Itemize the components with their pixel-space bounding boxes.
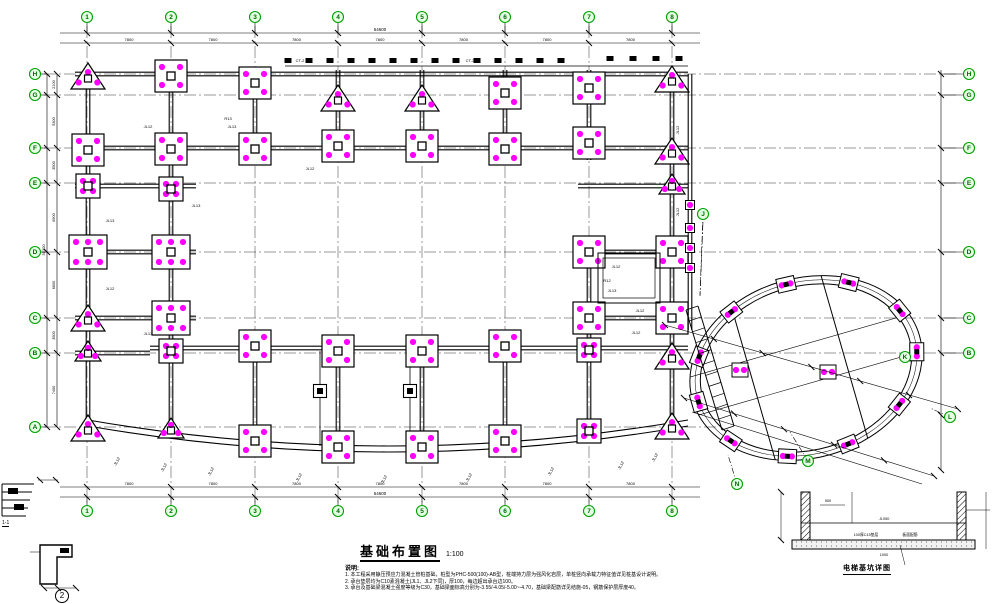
svg-text:4: 4 [336, 14, 340, 21]
svg-text:L: L [948, 414, 952, 421]
pile-cap [655, 413, 689, 439]
svg-text:F: F [33, 145, 37, 152]
pile-cap [655, 343, 689, 369]
svg-text:54600: 54600 [374, 27, 387, 32]
svg-text:JL12: JL12 [675, 207, 680, 216]
note-item-3: 3. 承台及基础梁混凝土强度等级为C30，基础梁面标高分别为-3.55/-4.0… [345, 585, 675, 592]
svg-text:G: G [966, 92, 971, 99]
svg-text:7800: 7800 [376, 37, 386, 42]
svg-text:JL12: JL12 [636, 308, 645, 313]
pile-cap [404, 385, 417, 398]
svg-text:JL13: JL13 [144, 331, 153, 336]
svg-text:7800: 7800 [543, 481, 553, 486]
pile-cap [72, 134, 104, 166]
svg-text:H: H [33, 71, 38, 78]
svg-text:1: 1 [85, 14, 89, 21]
svg-text:JL12: JL12 [632, 330, 641, 335]
svg-text:100厚C15垫层: 100厚C15垫层 [854, 532, 879, 537]
pile-cap [159, 177, 183, 201]
svg-text:B: B [33, 350, 38, 357]
annex-ring [668, 249, 944, 487]
pile-cap [155, 60, 187, 92]
svg-text:8: 8 [670, 14, 674, 21]
svg-text:7800: 7800 [626, 37, 636, 42]
svg-text:3500: 3500 [52, 331, 56, 339]
note-item-1: 1. 本工程采用静压预应力混凝土管桩基础，桩型为PHC-500(100)-AB型… [345, 572, 675, 579]
svg-text:CT-2: CT-2 [466, 58, 475, 63]
svg-text:7: 7 [587, 508, 591, 515]
pile-cap [573, 236, 605, 268]
svg-text:JL12: JL12 [306, 166, 315, 171]
svg-text:JL12: JL12 [294, 472, 303, 483]
svg-text:6900: 6900 [52, 213, 56, 221]
pile-cap [686, 244, 695, 253]
pile-cap [314, 385, 327, 398]
pile-cap [405, 85, 439, 111]
elevator-pit-section: 500-5.050100厚C15垫层板面配筋1000 [778, 489, 990, 565]
pile-cap [152, 235, 190, 269]
svg-text:N: N [735, 481, 740, 488]
drawing-scale: 1:100 [446, 551, 464, 558]
svg-text:R13: R13 [224, 116, 232, 121]
svg-text:JL12: JL12 [650, 452, 659, 463]
svg-text:K: K [903, 354, 908, 361]
svg-text:1: 1 [85, 508, 89, 515]
svg-text:2: 2 [169, 508, 173, 515]
pile-cap [159, 339, 183, 363]
svg-text:35300: 35300 [41, 244, 46, 256]
annex-pile-cap [778, 449, 797, 464]
svg-text:R12: R12 [603, 278, 611, 283]
svg-text:JL12: JL12 [159, 462, 168, 473]
svg-text:D: D [33, 249, 38, 256]
pile-cap [322, 335, 354, 367]
plan-canvas: 5460078007800780078007800780078007800780… [0, 0, 1000, 604]
svg-text:5: 5 [420, 508, 424, 515]
svg-text:8: 8 [670, 508, 674, 515]
pile-cap [489, 133, 521, 165]
pile-cap [406, 130, 438, 162]
svg-text:JL12: JL12 [106, 286, 115, 291]
svg-text:6: 6 [503, 14, 507, 21]
svg-text:5300: 5300 [52, 117, 56, 125]
svg-text:JL12: JL12 [612, 264, 621, 269]
annex-pile-cap [889, 299, 911, 322]
detail-2 [30, 545, 79, 591]
svg-text:7800: 7800 [459, 37, 469, 42]
svg-text:板面配筋: 板面配筋 [902, 532, 917, 537]
svg-text:CT-2: CT-2 [296, 58, 305, 63]
pile-cap [489, 425, 521, 457]
pile-caps [69, 60, 695, 463]
svg-text:7800: 7800 [626, 481, 636, 486]
pile-cap [573, 127, 605, 159]
svg-text:JL12: JL12 [675, 125, 680, 134]
pile-cap [69, 235, 107, 269]
pile-cap [239, 67, 271, 99]
svg-text:JL12: JL12 [379, 474, 388, 485]
annex-pile-cap [720, 301, 743, 323]
svg-text:F: F [967, 145, 971, 152]
svg-text:3: 3 [253, 14, 257, 21]
svg-text:A: A [33, 424, 38, 431]
pile-cap [686, 264, 695, 273]
notes-header: 说明: [345, 563, 675, 572]
svg-text:2100: 2100 [52, 80, 56, 88]
svg-text:7800: 7800 [125, 481, 135, 486]
detail-2-bubble: 2 [55, 589, 69, 603]
pile-cap [489, 77, 521, 109]
svg-text:C: C [33, 315, 38, 322]
svg-text:500: 500 [825, 499, 831, 503]
pile-cap [406, 335, 438, 367]
pile-cap [655, 66, 689, 92]
svg-text:JL12: JL12 [546, 466, 555, 477]
pile-cap [152, 301, 190, 335]
svg-text:5: 5 [420, 14, 424, 21]
pile-cap [577, 338, 601, 362]
pile-cap [239, 425, 271, 457]
annex-pile-cap [910, 343, 924, 361]
svg-text:JL13: JL13 [608, 288, 617, 293]
svg-text:7: 7 [587, 14, 591, 21]
svg-text:7800: 7800 [543, 37, 553, 42]
svg-text:4: 4 [336, 508, 340, 515]
svg-text:7800: 7800 [209, 37, 219, 42]
pile-cap [686, 224, 695, 233]
svg-text:-5.050: -5.050 [879, 517, 890, 521]
pile-cap [577, 419, 601, 443]
pit-detail-title: 电梯基坑详图 [843, 563, 891, 575]
svg-text:JL13: JL13 [192, 203, 201, 208]
svg-text:JL12: JL12 [616, 460, 625, 471]
svg-text:1000: 1000 [880, 553, 888, 557]
pile-cap [655, 138, 689, 164]
foundation-plan-drawing: 5460078007800780078007800780078007800780… [0, 0, 1000, 604]
pile-cap [489, 330, 521, 362]
svg-text:M: M [805, 458, 810, 465]
pile-cap [322, 130, 354, 162]
drawing-title-block: 基础布置图1:100 [360, 541, 464, 561]
svg-text:54600: 54600 [374, 491, 387, 496]
pile-cap [155, 133, 187, 165]
svg-text:7800: 7800 [125, 37, 135, 42]
tie-beam-pads [285, 56, 689, 66]
svg-text:J: J [701, 211, 705, 218]
drawing-title: 基础布置图 [360, 544, 440, 562]
pile-cap [656, 236, 688, 268]
detail-1-label: 1-1 [2, 520, 9, 527]
pile-cap [321, 85, 355, 111]
pile-cap [158, 418, 184, 438]
svg-text:7400: 7400 [52, 386, 56, 394]
svg-text:6600: 6600 [52, 281, 56, 289]
pile-cap [573, 302, 605, 334]
pile-cap [239, 133, 271, 165]
svg-text:JL13: JL13 [106, 218, 115, 223]
pile-cap [239, 330, 271, 362]
annex-pile-cap [888, 393, 910, 416]
svg-text:7800: 7800 [292, 37, 302, 42]
annex-pile-cap [776, 276, 797, 294]
svg-text:2: 2 [169, 14, 173, 21]
svg-text:JL13: JL13 [228, 124, 237, 129]
svg-text:B: B [967, 350, 972, 357]
annex-pile-cap [719, 430, 742, 452]
svg-text:C: C [967, 315, 972, 322]
annex-pile-cap [689, 391, 707, 412]
svg-text:3500: 3500 [52, 161, 56, 169]
detail-1 [2, 477, 59, 516]
svg-text:E: E [33, 180, 38, 187]
annex-pile-cap [838, 274, 859, 292]
svg-text:E: E [967, 180, 972, 187]
pile-cap [322, 431, 354, 463]
notes-block: 说明: 1. 本工程采用静压预应力混凝土管桩基础，桩型为PHC-500(100)… [345, 563, 675, 592]
svg-text:JL12: JL12 [206, 466, 215, 477]
svg-text:G: G [32, 92, 37, 99]
svg-text:D: D [967, 249, 972, 256]
pile-cap [656, 302, 688, 334]
pile-cap [686, 201, 695, 210]
pile-cap [406, 431, 438, 463]
svg-text:3: 3 [253, 508, 257, 515]
pile-cap [573, 72, 605, 104]
annex-pile-cap [689, 346, 709, 368]
pile-cap [76, 174, 100, 198]
svg-text:JL12: JL12 [112, 456, 121, 467]
svg-text:JL12: JL12 [464, 472, 473, 483]
svg-text:7800: 7800 [209, 481, 219, 486]
svg-text:H: H [967, 71, 972, 78]
svg-text:JL12: JL12 [144, 124, 153, 129]
svg-text:6: 6 [503, 508, 507, 515]
